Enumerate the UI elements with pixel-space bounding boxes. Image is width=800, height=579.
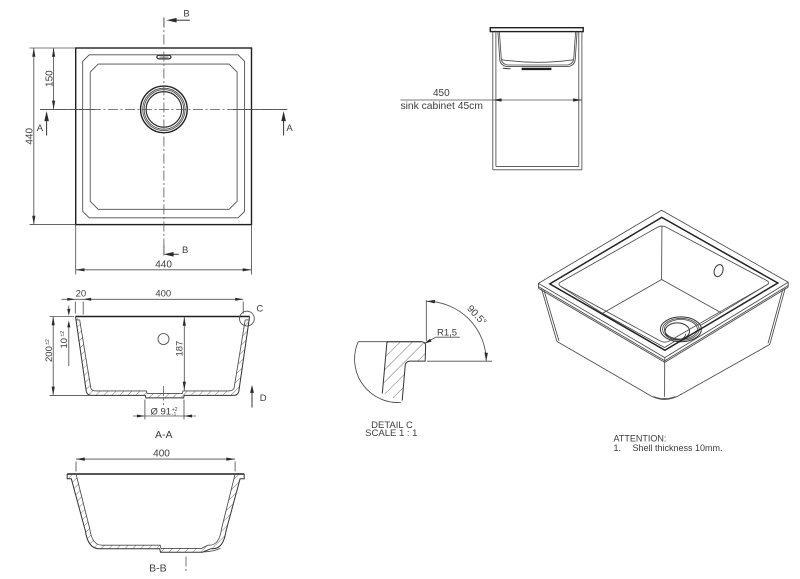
svg-text:150: 150: [44, 70, 55, 87]
svg-text:1.: 1.: [614, 443, 622, 453]
svg-text:ATTENTION:: ATTENTION:: [614, 433, 667, 443]
svg-text:D: D: [260, 393, 267, 404]
svg-text:sink cabinet 45cm: sink cabinet 45cm: [400, 101, 482, 112]
svg-text:R1,5: R1,5: [437, 327, 457, 338]
svg-text:-1: -1: [172, 412, 177, 418]
svg-text:A: A: [286, 123, 293, 134]
svg-text:440: 440: [155, 260, 172, 271]
svg-text:20: 20: [76, 289, 87, 300]
svg-text:440: 440: [25, 128, 36, 145]
svg-text:C: C: [256, 304, 263, 315]
svg-text:B: B: [183, 9, 189, 20]
svg-text:400: 400: [155, 289, 171, 300]
svg-text:400: 400: [153, 448, 170, 459]
svg-text:SCALE 1 : 1: SCALE 1 : 1: [365, 428, 417, 439]
svg-text:B-B: B-B: [149, 563, 167, 575]
svg-text:Shell thickness 10mm.: Shell thickness 10mm.: [633, 443, 723, 453]
svg-text:A: A: [37, 123, 44, 134]
svg-text:450: 450: [433, 88, 450, 99]
svg-text:B: B: [182, 245, 188, 256]
svg-text:A-A: A-A: [155, 429, 173, 441]
svg-text:187: 187: [175, 341, 186, 357]
svg-text:Ø 91: Ø 91: [151, 406, 172, 417]
